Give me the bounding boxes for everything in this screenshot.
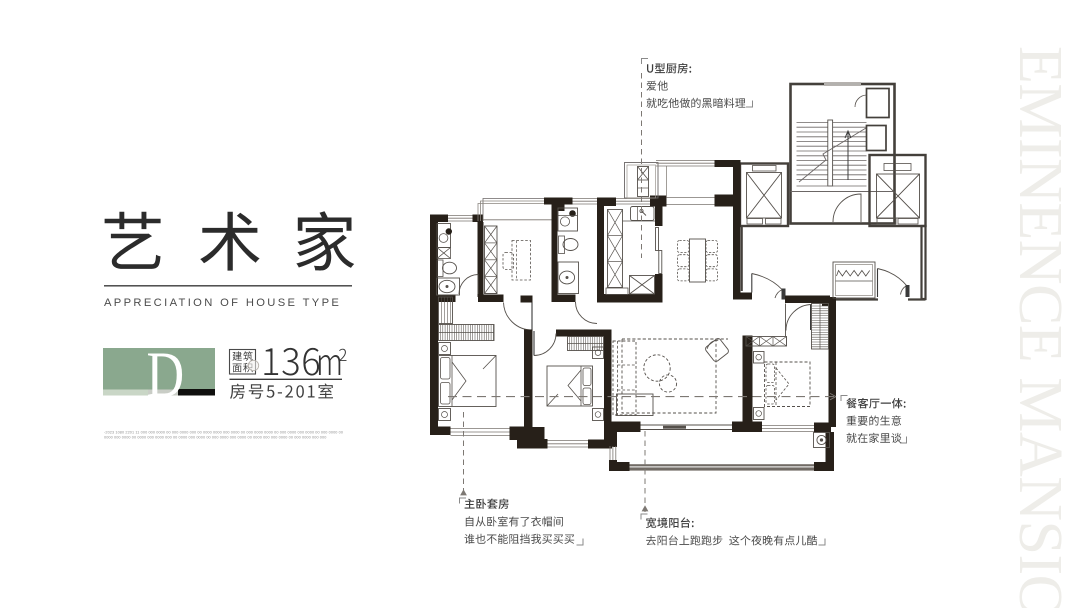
svg-text:0000 000 0000 00 0000 000 0000: 0000 000 0000 00 0000 000 0000 000 00 00… [104,436,326,440]
svg-text:EMINENCE MANSION: EMINENCE MANSION [1006,46,1074,608]
svg-text:APPRECIATION OF HOUSE TYPE: APPRECIATION OF HOUSE TYPE [104,297,341,309]
svg-text:-2023 1080 2201 11 000 000 000: -2023 1080 2201 11 000 000 0000 00 000 0… [104,431,343,435]
svg-text:D: D [147,338,185,411]
